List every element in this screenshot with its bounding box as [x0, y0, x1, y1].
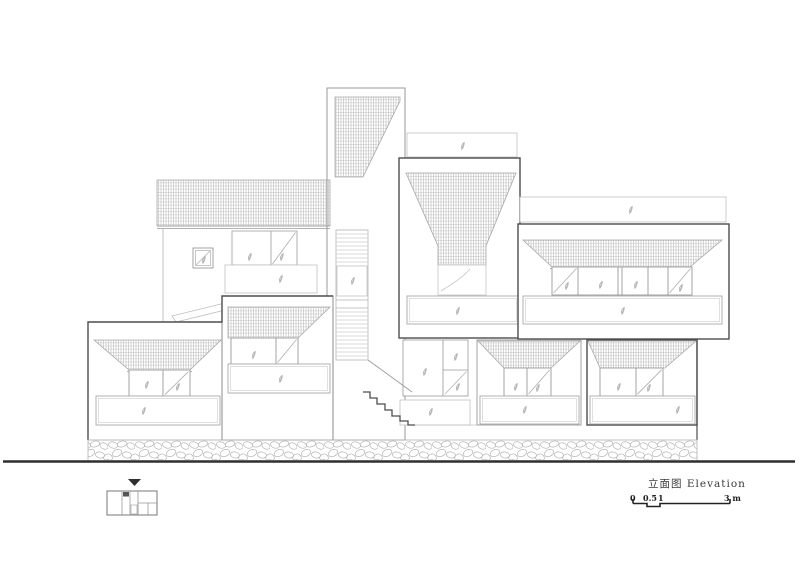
- elevation-canvas: 立面图 Elevation 0 0.5 1 3 m: [0, 0, 800, 565]
- terrace-parapet: [523, 296, 722, 324]
- scale-tick-05: 0.5: [643, 493, 657, 503]
- lower-rooms: [400, 340, 470, 425]
- tile-canopy: [523, 240, 722, 267]
- tiled-roof: [157, 180, 330, 226]
- upper-right-block-d: [518, 197, 729, 339]
- roof-parapet-band: [520, 197, 726, 222]
- view-direction-marker: [128, 479, 141, 486]
- terrace-unit-b: [222, 296, 333, 440]
- window-row: [231, 338, 298, 364]
- stone-base: [88, 440, 697, 461]
- elevation-drawing: [3, 88, 795, 462]
- window-row: [504, 368, 551, 396]
- window-row: [600, 368, 663, 396]
- drawing-sheet: 立面图 Elevation 0 0.5 1 3 m: [0, 0, 800, 565]
- terrace-parapet: [480, 396, 579, 424]
- window-pair: [232, 231, 297, 265]
- window-row: [552, 267, 692, 295]
- stair-tower: [327, 88, 405, 440]
- key-plan-icon: [107, 479, 157, 515]
- window-row: [129, 370, 190, 396]
- scale-bar: 0 0.5 1 3 m: [630, 493, 741, 507]
- terrace-unit-a: [88, 322, 222, 440]
- terrace-parapet: [228, 364, 330, 393]
- drawing-title: 立面图 Elevation: [648, 477, 746, 490]
- terrace-parapet: [590, 396, 695, 424]
- scale-tick-1: 1: [658, 493, 664, 503]
- title-block: 立面图 Elevation 0 0.5 1 3 m: [630, 477, 746, 507]
- scale-tick-3m: 3 m: [724, 493, 741, 503]
- balcony-parapet: [225, 265, 317, 293]
- entry-panel: [438, 265, 486, 295]
- terrace-parapet: [407, 296, 519, 324]
- sloped-awning: [172, 303, 225, 322]
- square-window: [193, 248, 213, 268]
- roof-eave: [157, 226, 330, 229]
- terrace-parapet: [96, 396, 220, 425]
- tower-stair-window: [336, 230, 368, 360]
- terrace-unit-f: [587, 340, 697, 425]
- terrace-unit-e: [477, 340, 581, 425]
